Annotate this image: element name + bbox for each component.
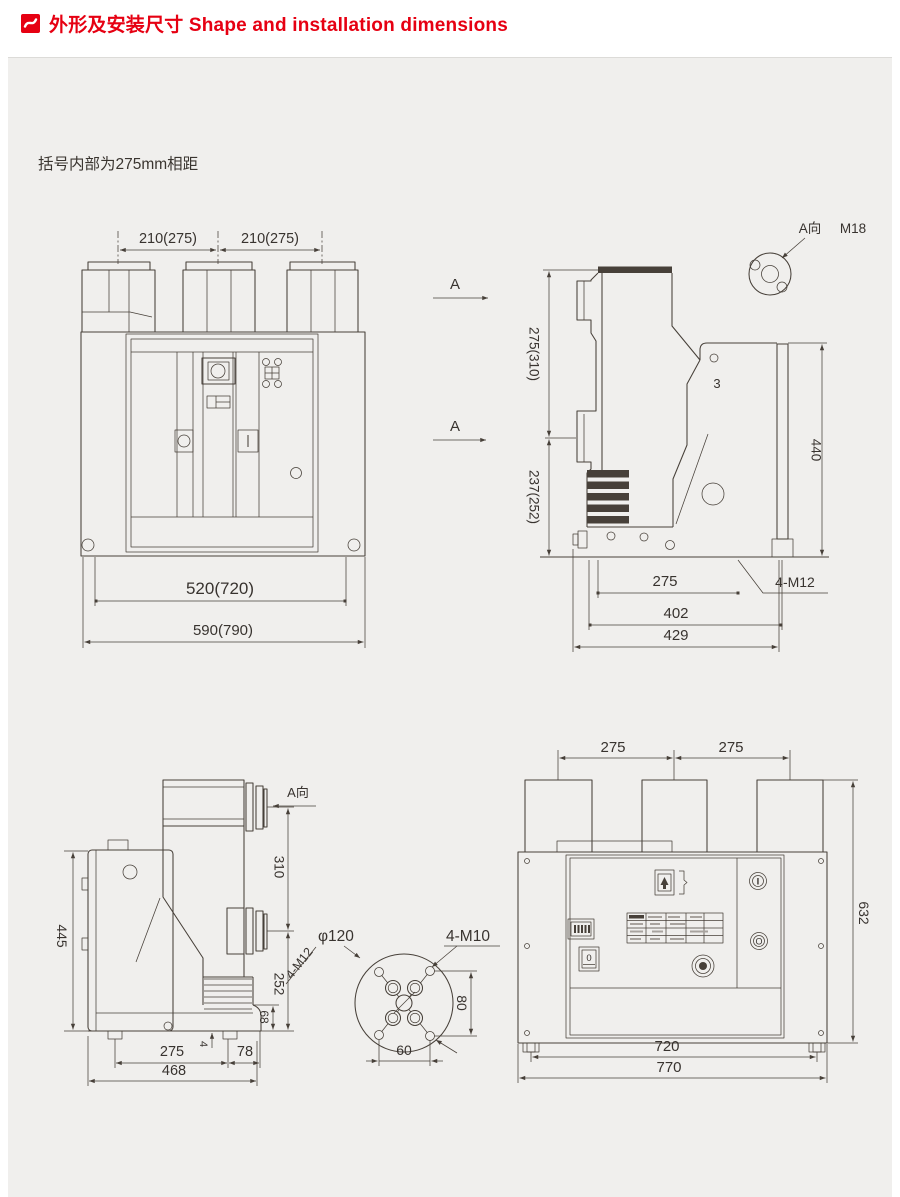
operation-counter [568,919,594,939]
dim-vertical-80: 80 [454,995,470,1011]
dim-depth-402: 402 [663,605,688,622]
dim-lower-252: 252 [271,973,286,996]
dim-pole-spacing-310: 310 [271,856,286,879]
dim-height-632: 632 [856,901,872,925]
dim-height-445: 445 [54,924,70,948]
technical-drawings: 210(275) 210(275) [0,0,900,1197]
spring-charge-indicator [655,870,687,895]
label-m18: M18 [840,221,866,236]
dim-hole-spacing-720: 720 [654,1038,679,1055]
position-indicator: 0 [579,947,599,971]
datasheet-page: 外形及安装尺寸 Shape and installation dimension… [0,0,900,1197]
dim-pole-pitch-left-275: 275 [600,739,625,756]
close-button: I [750,873,767,890]
label-4-m12: 4-M12 [775,574,815,590]
dim-overall-width-770: 770 [656,1059,681,1076]
dim-pole-pitch-right-275: 275 [718,739,743,756]
manual-trip-button [692,955,714,977]
dim-hole-spacing: 520(720) [186,579,254,598]
a-view-flange-detail: A向 M18 [749,221,866,295]
label-a-view: A向 [799,221,822,236]
dim-base-68: 68 [257,1010,271,1024]
nameplate [627,913,723,943]
dim-overall-width: 590(790) [193,622,253,639]
front-view-top-drawing: 210(275) 210(275) [81,231,365,648]
label-a-view-2: A向 [287,785,309,800]
dim-pole-pitch-right: 210(275) [241,231,299,247]
dim-depth-429: 429 [663,627,688,644]
dim-lower-spacing: 237(252) [526,470,541,524]
close-button-label: I [757,877,760,888]
front-view-bottom-drawing: 275 275 I [518,739,872,1083]
section-label-a-lower: A [450,418,460,435]
dim-horizontal-60: 60 [396,1042,412,1058]
label-4-m10: 4-M10 [446,928,490,945]
dim-hole-pitch-275: 275 [652,573,677,590]
dim-pole-pitch-left: 210(275) [139,231,197,247]
dim-diameter-120: φ120 [318,928,354,945]
bracket-mark [679,871,687,894]
dim-height-440: 440 [808,439,823,462]
dim-foot-4: 4 [197,1041,209,1047]
dim-offset-78: 78 [237,1044,253,1060]
side-view-top-drawing: A A 3 [433,221,866,652]
dim-hole-pitch-275b: 275 [160,1044,184,1060]
open-button: O [751,933,768,950]
position-indicator-label: 0 [586,953,591,964]
section-label-a-upper: A [450,276,460,293]
dim-depth-468: 468 [162,1063,186,1079]
label-plate-thickness: 3 [713,376,720,391]
heat-sink-bars [587,470,629,524]
side-view-bottom-drawing: A向 [54,780,316,1086]
dim-pole-spacing: 275(310) [526,327,541,381]
open-button-label: O [755,937,762,947]
flange-detail-drawing: φ120 4-M10 80 [318,928,500,1066]
